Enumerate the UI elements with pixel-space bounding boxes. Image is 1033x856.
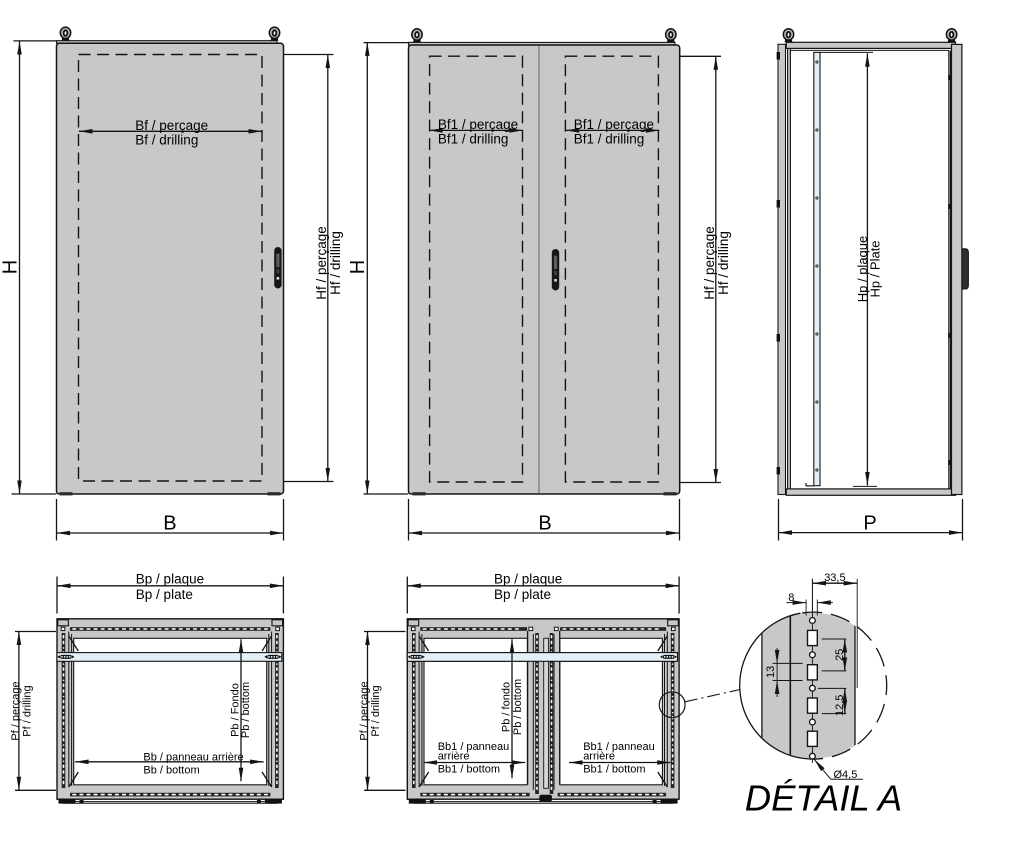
- svg-text:Pb / fondo: Pb / fondo: [501, 682, 513, 732]
- svg-text:Bp / plaque: Bp / plaque: [136, 572, 204, 587]
- svg-text:Pf / drilling: Pf / drilling: [370, 685, 382, 736]
- svg-text:Bf1 / drilling: Bf1 / drilling: [438, 131, 509, 146]
- svg-text:H: H: [347, 260, 369, 274]
- svg-text:Bf1 / drilling: Bf1 / drilling: [574, 131, 645, 146]
- svg-text:Bp / plate: Bp / plate: [136, 587, 193, 602]
- svg-text:Bp / plaque: Bp / plaque: [494, 572, 562, 587]
- svg-text:33,5: 33,5: [824, 572, 845, 584]
- svg-text:Hf / perçage: Hf / perçage: [702, 226, 717, 300]
- svg-text:Pb / bottom: Pb / bottom: [240, 682, 252, 738]
- svg-text:Bf1 / perçage: Bf1 / perçage: [438, 117, 518, 132]
- svg-text:Bb1 / bottom: Bb1 / bottom: [438, 763, 500, 775]
- svg-text:Bf / perçage: Bf / perçage: [135, 118, 208, 133]
- svg-text:Pf / perçage: Pf / perçage: [359, 681, 371, 740]
- svg-text:Hp / Plate: Hp / Plate: [867, 240, 882, 297]
- svg-text:B: B: [538, 513, 551, 535]
- svg-text:13: 13: [765, 666, 777, 678]
- svg-text:Bb / bottom: Bb / bottom: [143, 765, 199, 777]
- svg-text:Bf1 / perçage: Bf1 / perçage: [574, 117, 654, 132]
- svg-text:Pf / perçage: Pf / perçage: [10, 681, 22, 740]
- svg-text:25: 25: [834, 649, 846, 661]
- svg-text:B: B: [163, 513, 176, 535]
- svg-text:H: H: [0, 260, 21, 274]
- svg-text:8: 8: [788, 592, 794, 604]
- svg-text:Hf / perçage: Hf / perçage: [314, 226, 329, 300]
- svg-text:Bf / drilling: Bf / drilling: [135, 132, 198, 147]
- svg-text:P: P: [863, 513, 876, 535]
- svg-text:arrière: arrière: [438, 750, 470, 762]
- svg-text:Pb / bottom: Pb / bottom: [512, 679, 524, 735]
- svg-text:Bp / plate: Bp / plate: [494, 587, 551, 602]
- svg-text:Pf / drilling: Pf / drilling: [22, 685, 34, 736]
- svg-text:Bb1 / bottom: Bb1 / bottom: [583, 763, 645, 775]
- svg-text:12,5: 12,5: [834, 695, 846, 716]
- svg-text:arrière: arrière: [583, 750, 615, 762]
- svg-text:Hf / drilling: Hf / drilling: [716, 231, 731, 295]
- svg-text:DÉTAIL A: DÉTAIL A: [745, 778, 903, 819]
- svg-text:Bb / panneau arrière: Bb / panneau arrière: [143, 752, 243, 764]
- svg-text:Hf / drilling: Hf / drilling: [328, 231, 343, 295]
